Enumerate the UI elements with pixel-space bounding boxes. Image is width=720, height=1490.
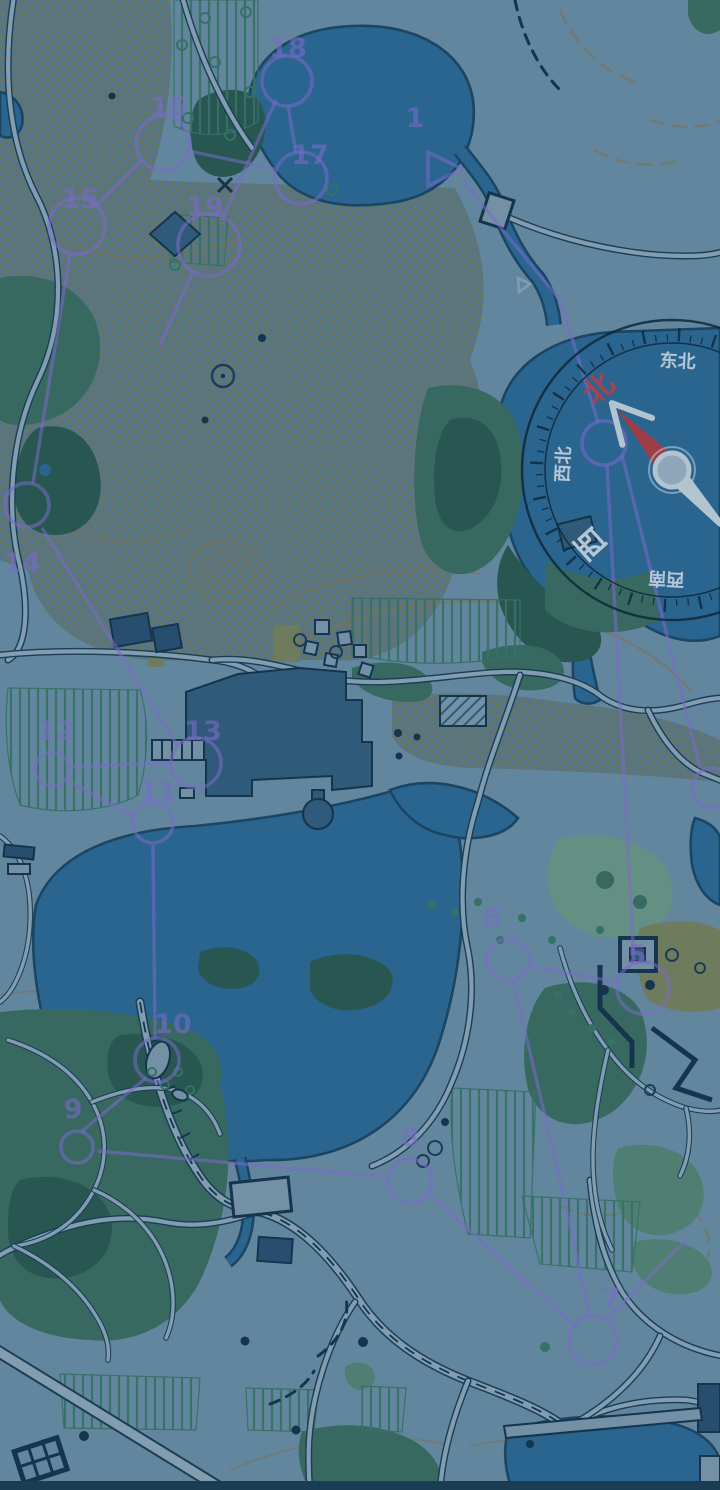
compass-label-northwest: 西北 <box>552 446 575 483</box>
course-number-16: 16 <box>150 92 188 123</box>
bottom-map-edge <box>0 1481 720 1490</box>
course-number-17: 17 <box>291 140 329 171</box>
course-number-14: 14 <box>3 548 41 579</box>
course-number-5: 5 <box>628 940 647 971</box>
course-number-13: 13 <box>184 716 222 747</box>
course-number-10: 10 <box>154 1009 192 1040</box>
course-number-15: 15 <box>61 184 99 215</box>
compass-label-northeast: 东北 <box>659 349 696 373</box>
course-number-9: 9 <box>64 1094 83 1125</box>
compass-label-southwest: 西南 <box>648 567 685 591</box>
course-number-1: 1 <box>406 103 425 134</box>
course-number-12: 12 <box>36 716 74 747</box>
course-number-18: 18 <box>269 33 307 64</box>
map-stage[interactable]: 15678910111213141516171819 北东北西南西西北 <box>0 0 720 1490</box>
course-number-6: 6 <box>483 903 502 934</box>
course-number-8: 8 <box>401 1122 420 1153</box>
course-number-7: 7 <box>602 1283 621 1314</box>
park-map-canvas[interactable]: 15678910111213141516171819 北东北西南西西北 <box>0 0 720 1490</box>
course-number-11: 11 <box>139 777 177 808</box>
course-number-19: 19 <box>186 192 224 223</box>
